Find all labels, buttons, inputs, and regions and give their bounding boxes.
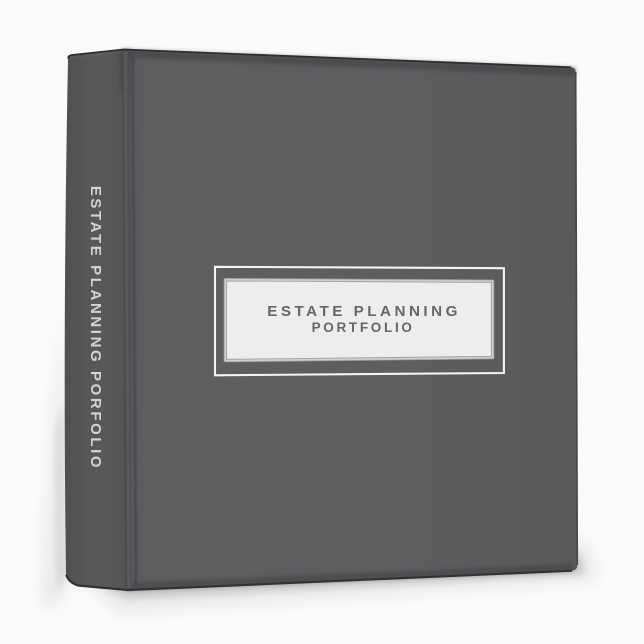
svg-text:ESTATE PLANNING PORFOLIO: ESTATE PLANNING PORFOLIO bbox=[87, 186, 104, 470]
svg-text:ESTATE PLANNING: ESTATE PLANNING bbox=[267, 303, 461, 320]
svg-text:PORTFOLIO: PORTFOLIO bbox=[312, 320, 415, 335]
